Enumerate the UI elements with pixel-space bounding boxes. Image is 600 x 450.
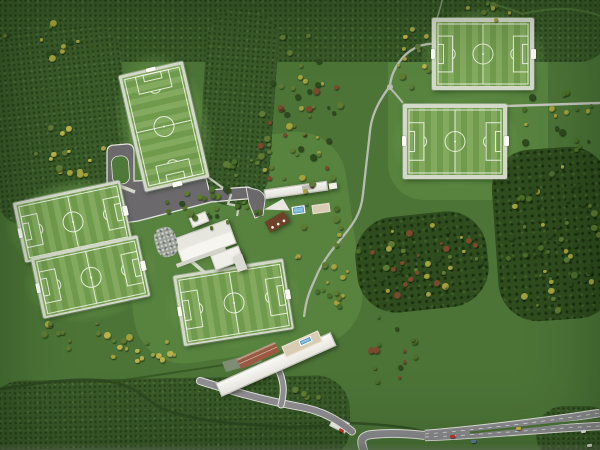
tree	[587, 140, 590, 143]
tree	[462, 250, 465, 253]
tree	[68, 339, 72, 343]
tree	[101, 146, 106, 151]
tree	[340, 275, 345, 280]
tree	[301, 391, 307, 397]
tree	[209, 186, 215, 192]
tree	[538, 245, 544, 251]
tree	[267, 143, 271, 147]
tree	[522, 107, 527, 112]
tree	[50, 20, 57, 27]
tree	[591, 225, 598, 232]
tree	[388, 241, 395, 248]
tree	[40, 38, 43, 41]
tree	[76, 40, 80, 44]
tree	[151, 353, 155, 357]
tree	[411, 338, 418, 345]
tree	[66, 346, 71, 351]
tree	[156, 353, 162, 359]
tree	[543, 270, 546, 273]
tree	[577, 184, 581, 188]
tree	[84, 173, 87, 176]
tree	[568, 254, 573, 259]
tree	[481, 10, 487, 16]
tree	[334, 85, 339, 90]
tree	[574, 148, 578, 152]
tree	[230, 163, 236, 169]
tree	[48, 323, 54, 329]
tree	[307, 89, 312, 94]
tree	[242, 201, 246, 205]
tree	[460, 236, 463, 239]
tree	[564, 249, 568, 253]
tree	[523, 225, 526, 228]
tree	[512, 204, 517, 209]
tree	[466, 6, 470, 10]
tree	[386, 246, 393, 253]
tree	[438, 267, 445, 274]
tree	[386, 289, 390, 293]
tree	[522, 139, 529, 146]
tree	[250, 159, 253, 162]
tree	[303, 189, 308, 194]
tree	[443, 246, 450, 253]
tree	[317, 153, 321, 157]
tree	[334, 290, 339, 295]
tree	[179, 201, 185, 207]
tree	[574, 138, 579, 143]
tree	[448, 255, 452, 259]
tree	[565, 221, 569, 225]
tree	[68, 39, 74, 45]
tree	[573, 243, 578, 248]
tree	[111, 355, 115, 359]
tree	[403, 35, 408, 40]
tree	[425, 261, 430, 266]
tree	[96, 331, 102, 337]
tree	[165, 200, 169, 204]
tree	[396, 270, 400, 274]
tree	[303, 133, 307, 137]
tree	[315, 82, 321, 88]
tree	[398, 376, 402, 380]
tree	[577, 144, 583, 150]
tree	[409, 246, 412, 249]
tree	[305, 202, 309, 206]
tree	[279, 84, 285, 90]
tree	[566, 198, 570, 202]
tree	[486, 2, 490, 6]
tree	[541, 223, 545, 227]
tree	[410, 27, 415, 32]
tree	[214, 193, 221, 200]
tree	[596, 232, 600, 238]
tree	[566, 250, 569, 253]
tree	[574, 230, 578, 234]
tree	[202, 196, 207, 201]
tree	[571, 272, 578, 279]
tree	[295, 94, 301, 100]
tree	[326, 138, 332, 144]
tree	[254, 210, 258, 214]
tree	[403, 349, 406, 352]
tree	[56, 165, 62, 171]
tree	[321, 82, 325, 86]
tree	[399, 73, 405, 79]
tree	[408, 277, 413, 282]
tree	[48, 125, 54, 131]
tree	[268, 121, 272, 125]
tree	[227, 163, 233, 169]
tree	[104, 332, 111, 339]
tree	[403, 360, 407, 364]
tree	[334, 300, 340, 306]
tree	[67, 170, 73, 176]
tree	[167, 351, 173, 357]
tree	[415, 44, 421, 50]
tree	[494, 18, 498, 22]
tree	[537, 202, 541, 206]
tree	[430, 223, 435, 228]
tree	[313, 88, 320, 95]
tree	[301, 224, 306, 229]
tree	[135, 349, 139, 353]
tree	[334, 243, 339, 248]
tree	[322, 262, 328, 268]
tree	[379, 276, 385, 282]
tree	[330, 175, 336, 181]
tree	[267, 150, 271, 154]
tree	[519, 195, 524, 200]
tree	[473, 243, 478, 248]
tree	[45, 321, 52, 328]
tree	[259, 111, 265, 117]
tree	[523, 253, 528, 258]
tree	[267, 176, 272, 181]
tree	[309, 181, 316, 188]
tree	[356, 249, 361, 254]
tree	[270, 80, 276, 86]
tree	[582, 278, 587, 283]
tree	[537, 242, 540, 245]
tree	[590, 104, 593, 107]
tree	[327, 293, 333, 299]
tree	[506, 256, 511, 261]
tree	[580, 200, 586, 206]
tree	[66, 126, 72, 132]
tree	[278, 105, 283, 110]
tree	[532, 187, 538, 193]
tree	[49, 55, 56, 62]
tree	[391, 230, 394, 233]
tree	[564, 257, 571, 264]
tree	[182, 205, 187, 210]
tree	[6, 33, 10, 37]
tree	[317, 151, 321, 155]
tree	[370, 250, 375, 255]
tree	[112, 339, 116, 343]
tree	[232, 159, 237, 164]
tree	[424, 274, 429, 279]
tree	[375, 380, 380, 385]
tree	[426, 292, 431, 297]
tree	[561, 165, 565, 169]
tree	[126, 334, 133, 341]
tree	[444, 229, 450, 235]
tree	[292, 387, 298, 393]
tree	[245, 205, 249, 209]
tree	[373, 347, 380, 354]
tree	[586, 267, 592, 273]
tree	[269, 165, 274, 170]
tree	[282, 177, 286, 181]
tree	[434, 256, 440, 262]
tree	[234, 174, 238, 178]
tree	[337, 304, 342, 309]
tree	[315, 289, 320, 294]
tree	[48, 322, 53, 327]
tree	[255, 161, 259, 165]
tree	[549, 171, 555, 177]
tree	[117, 345, 123, 351]
tree	[235, 203, 241, 209]
tree	[299, 64, 303, 68]
tree	[475, 257, 479, 261]
tree	[214, 206, 219, 211]
tree	[444, 285, 447, 288]
tree	[60, 131, 65, 136]
tree	[316, 136, 319, 139]
tree	[298, 146, 304, 152]
tree	[296, 254, 301, 259]
tree	[337, 102, 344, 109]
tree	[424, 34, 429, 39]
tree	[448, 266, 453, 271]
tree	[440, 270, 445, 275]
tree	[535, 189, 541, 195]
tree	[337, 233, 342, 238]
tree	[197, 194, 203, 200]
tree	[339, 226, 343, 230]
tree	[110, 354, 114, 358]
tree	[56, 331, 61, 336]
tree	[529, 94, 536, 101]
tree	[61, 44, 66, 49]
tree	[403, 282, 408, 287]
tree	[395, 327, 399, 331]
tree	[210, 193, 216, 199]
tree	[524, 252, 530, 258]
tree	[413, 355, 418, 360]
tree	[390, 254, 393, 257]
tree	[466, 238, 472, 244]
tree	[394, 292, 401, 299]
tree	[409, 84, 415, 90]
tree	[145, 341, 149, 345]
tree	[471, 238, 475, 242]
tree	[334, 206, 340, 212]
tree	[140, 356, 144, 360]
tree	[559, 237, 564, 242]
tree	[295, 153, 299, 157]
tree	[290, 148, 295, 153]
tree	[210, 226, 214, 230]
tree	[586, 109, 591, 114]
tree	[524, 123, 528, 127]
tree	[508, 11, 511, 14]
tree	[411, 338, 416, 343]
tree	[264, 136, 270, 142]
tree	[526, 196, 532, 202]
tree	[165, 340, 169, 344]
tree	[414, 268, 418, 272]
tree	[331, 264, 337, 270]
tree	[575, 108, 579, 112]
tree	[557, 241, 561, 245]
tree	[434, 280, 441, 287]
tree	[280, 35, 285, 40]
tree	[60, 49, 65, 54]
tree	[295, 256, 298, 259]
tree	[406, 230, 413, 237]
tree	[422, 64, 427, 69]
tree	[491, 6, 496, 11]
tree	[562, 93, 566, 97]
tree	[304, 395, 309, 400]
tree	[58, 170, 62, 174]
tree	[517, 197, 521, 201]
tree	[589, 279, 595, 285]
tree	[302, 132, 306, 136]
tree	[235, 204, 240, 209]
tree	[398, 365, 403, 370]
tree	[282, 108, 285, 111]
tree	[95, 322, 98, 325]
tree	[588, 204, 592, 208]
tree	[417, 49, 421, 53]
tree	[258, 143, 264, 149]
tree	[283, 133, 287, 137]
tree	[333, 216, 340, 223]
tree	[256, 209, 262, 215]
tree	[586, 271, 592, 277]
model-aerial-photo	[0, 0, 600, 450]
tree	[173, 353, 177, 357]
tree	[326, 281, 329, 284]
tree	[559, 129, 566, 136]
tree	[377, 315, 381, 319]
tree	[490, 2, 497, 9]
tree	[303, 79, 308, 84]
tree	[325, 166, 329, 170]
tree	[549, 280, 553, 284]
tree	[508, 234, 514, 240]
tree	[49, 25, 52, 28]
tree	[368, 347, 375, 354]
tree	[263, 168, 267, 172]
tree	[192, 215, 198, 221]
tree	[346, 270, 349, 273]
tree	[187, 211, 194, 218]
tree	[383, 265, 390, 272]
tree	[564, 110, 569, 115]
tree	[391, 267, 396, 272]
tree	[223, 161, 230, 168]
tree	[291, 86, 295, 90]
tree	[299, 106, 304, 111]
tree	[453, 238, 456, 241]
tree	[215, 214, 219, 218]
tree	[46, 51, 53, 58]
tree	[135, 359, 140, 364]
tree	[551, 297, 556, 302]
tree	[41, 331, 48, 338]
tree	[536, 304, 539, 307]
tree	[401, 249, 405, 253]
tree	[442, 271, 445, 274]
tree	[310, 184, 314, 188]
tree	[521, 293, 528, 300]
tree	[373, 367, 376, 370]
tree	[209, 215, 213, 219]
tree	[535, 249, 542, 256]
tree	[3, 34, 7, 38]
tree	[310, 154, 317, 161]
tree	[548, 288, 555, 295]
tree	[299, 175, 306, 182]
tree	[49, 157, 53, 161]
tree	[234, 160, 238, 164]
tree	[426, 69, 431, 74]
tree	[34, 152, 38, 156]
tree	[312, 105, 316, 109]
tree	[442, 283, 449, 290]
tree	[555, 126, 559, 130]
tree	[166, 209, 171, 214]
tree	[225, 187, 232, 194]
tree	[402, 47, 406, 51]
tree	[493, 4, 498, 9]
tree	[549, 277, 553, 281]
model-front-edge	[0, 443, 600, 450]
tree	[568, 281, 573, 286]
tree	[591, 210, 598, 217]
tree	[284, 112, 289, 117]
tree	[341, 294, 345, 298]
tree	[294, 388, 297, 391]
tree	[539, 274, 543, 278]
tree	[206, 211, 209, 214]
tree	[390, 262, 394, 266]
tree	[306, 34, 310, 38]
tree	[308, 114, 312, 118]
tree	[440, 242, 443, 245]
tree	[377, 342, 382, 347]
tree	[417, 254, 420, 257]
tree	[563, 90, 570, 97]
tree	[415, 271, 420, 276]
tree	[316, 395, 321, 400]
tree	[554, 114, 557, 117]
tree	[316, 59, 321, 64]
tree	[403, 57, 407, 61]
tree	[121, 338, 128, 345]
tree	[223, 186, 229, 192]
tree	[546, 250, 550, 254]
tree	[556, 225, 561, 230]
tree	[62, 150, 68, 156]
tree	[327, 106, 331, 110]
tree	[571, 185, 575, 189]
